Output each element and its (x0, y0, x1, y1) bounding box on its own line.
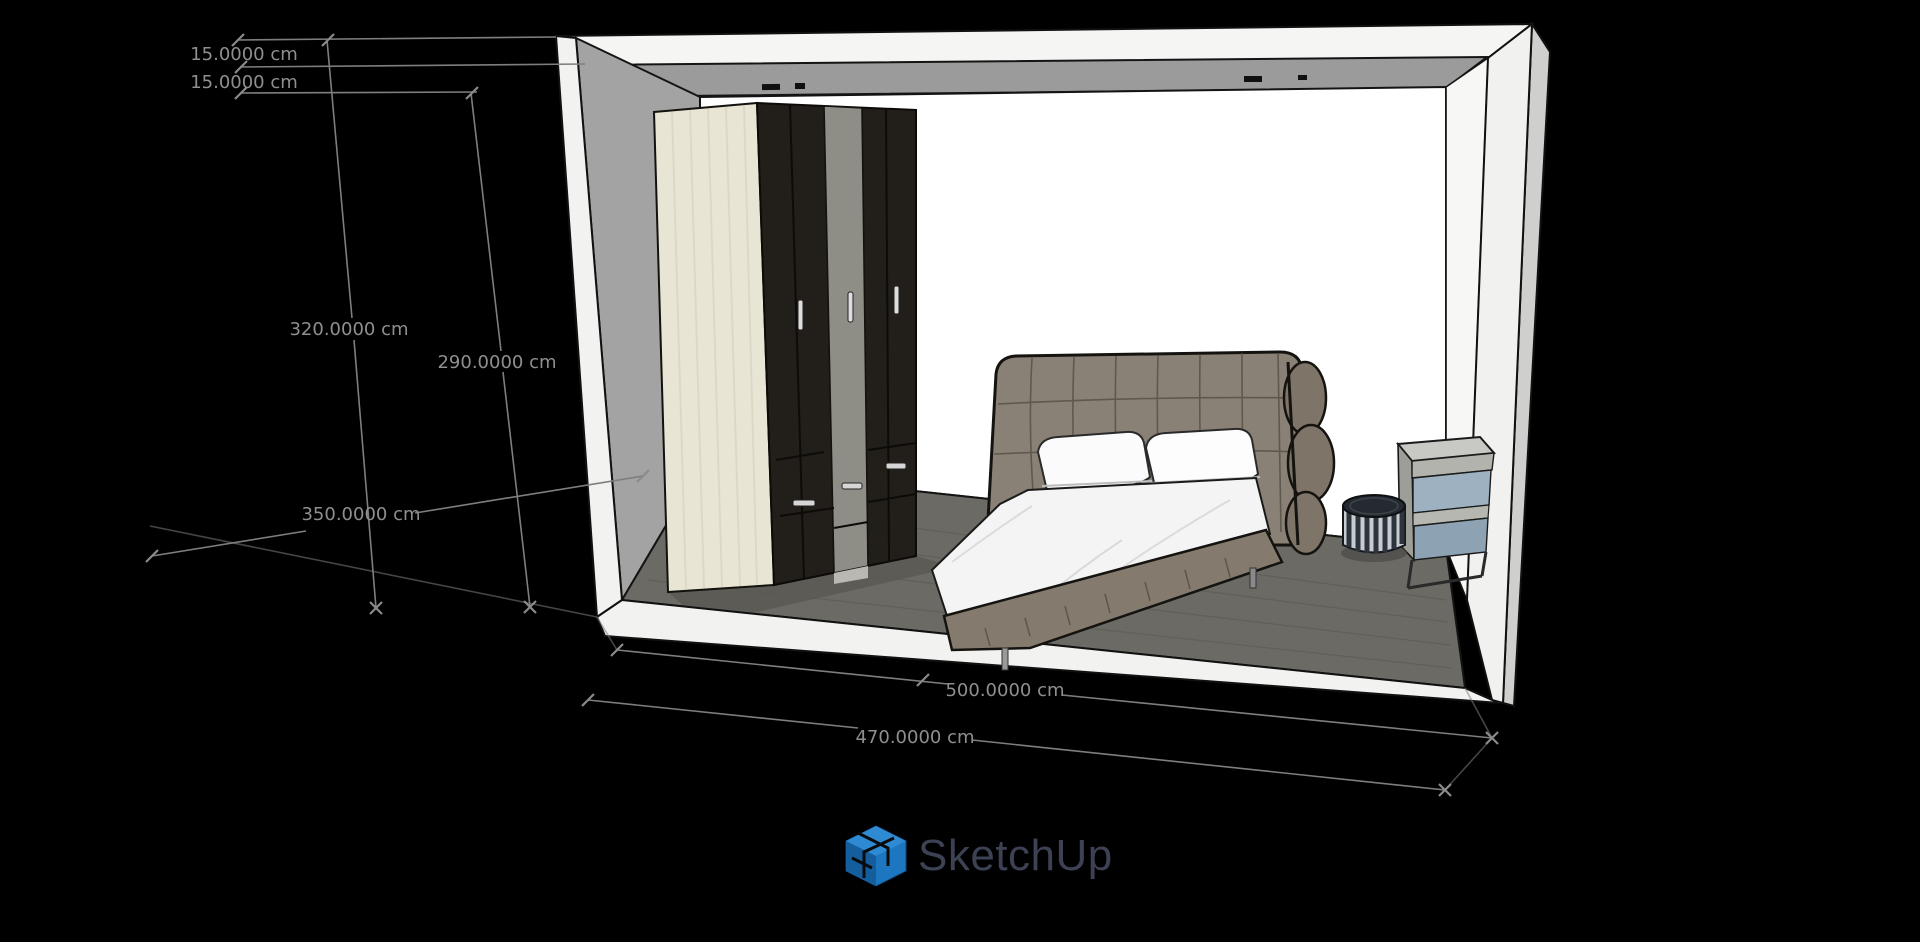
wardrobe (654, 103, 916, 592)
striped-stool (1341, 495, 1407, 562)
dim-label-beam-top: 15.0000 cm (190, 72, 298, 93)
headboard-wing (1284, 362, 1334, 554)
dim-label-width-outer: 500.0000 cm (945, 680, 1064, 701)
nightstand-glass-lower (1414, 518, 1488, 560)
dim-label-width-inner: 470.0000 cm (855, 727, 974, 748)
dim-label-overall-height: 320.0000 cm (289, 319, 408, 340)
dim-label-beam-front: 15.0000 cm (190, 44, 298, 65)
sketchup-canvas: 15.0000 cm 15.0000 cm 320.0000 cm 290.00… (0, 0, 1920, 942)
dim-label-room-depth: 350.0000 cm (301, 504, 420, 525)
viewport-3d[interactable]: 15.0000 cm 15.0000 cm 320.0000 cm 290.00… (0, 0, 1920, 942)
sketchup-logo-text: SketchUp (918, 831, 1113, 880)
dim-label-interior-height: 290.0000 cm (437, 352, 556, 373)
sketchup-watermark: SketchUp (846, 826, 1113, 886)
bed-leg-right (1250, 568, 1256, 588)
bed-leg-front (1002, 648, 1008, 670)
